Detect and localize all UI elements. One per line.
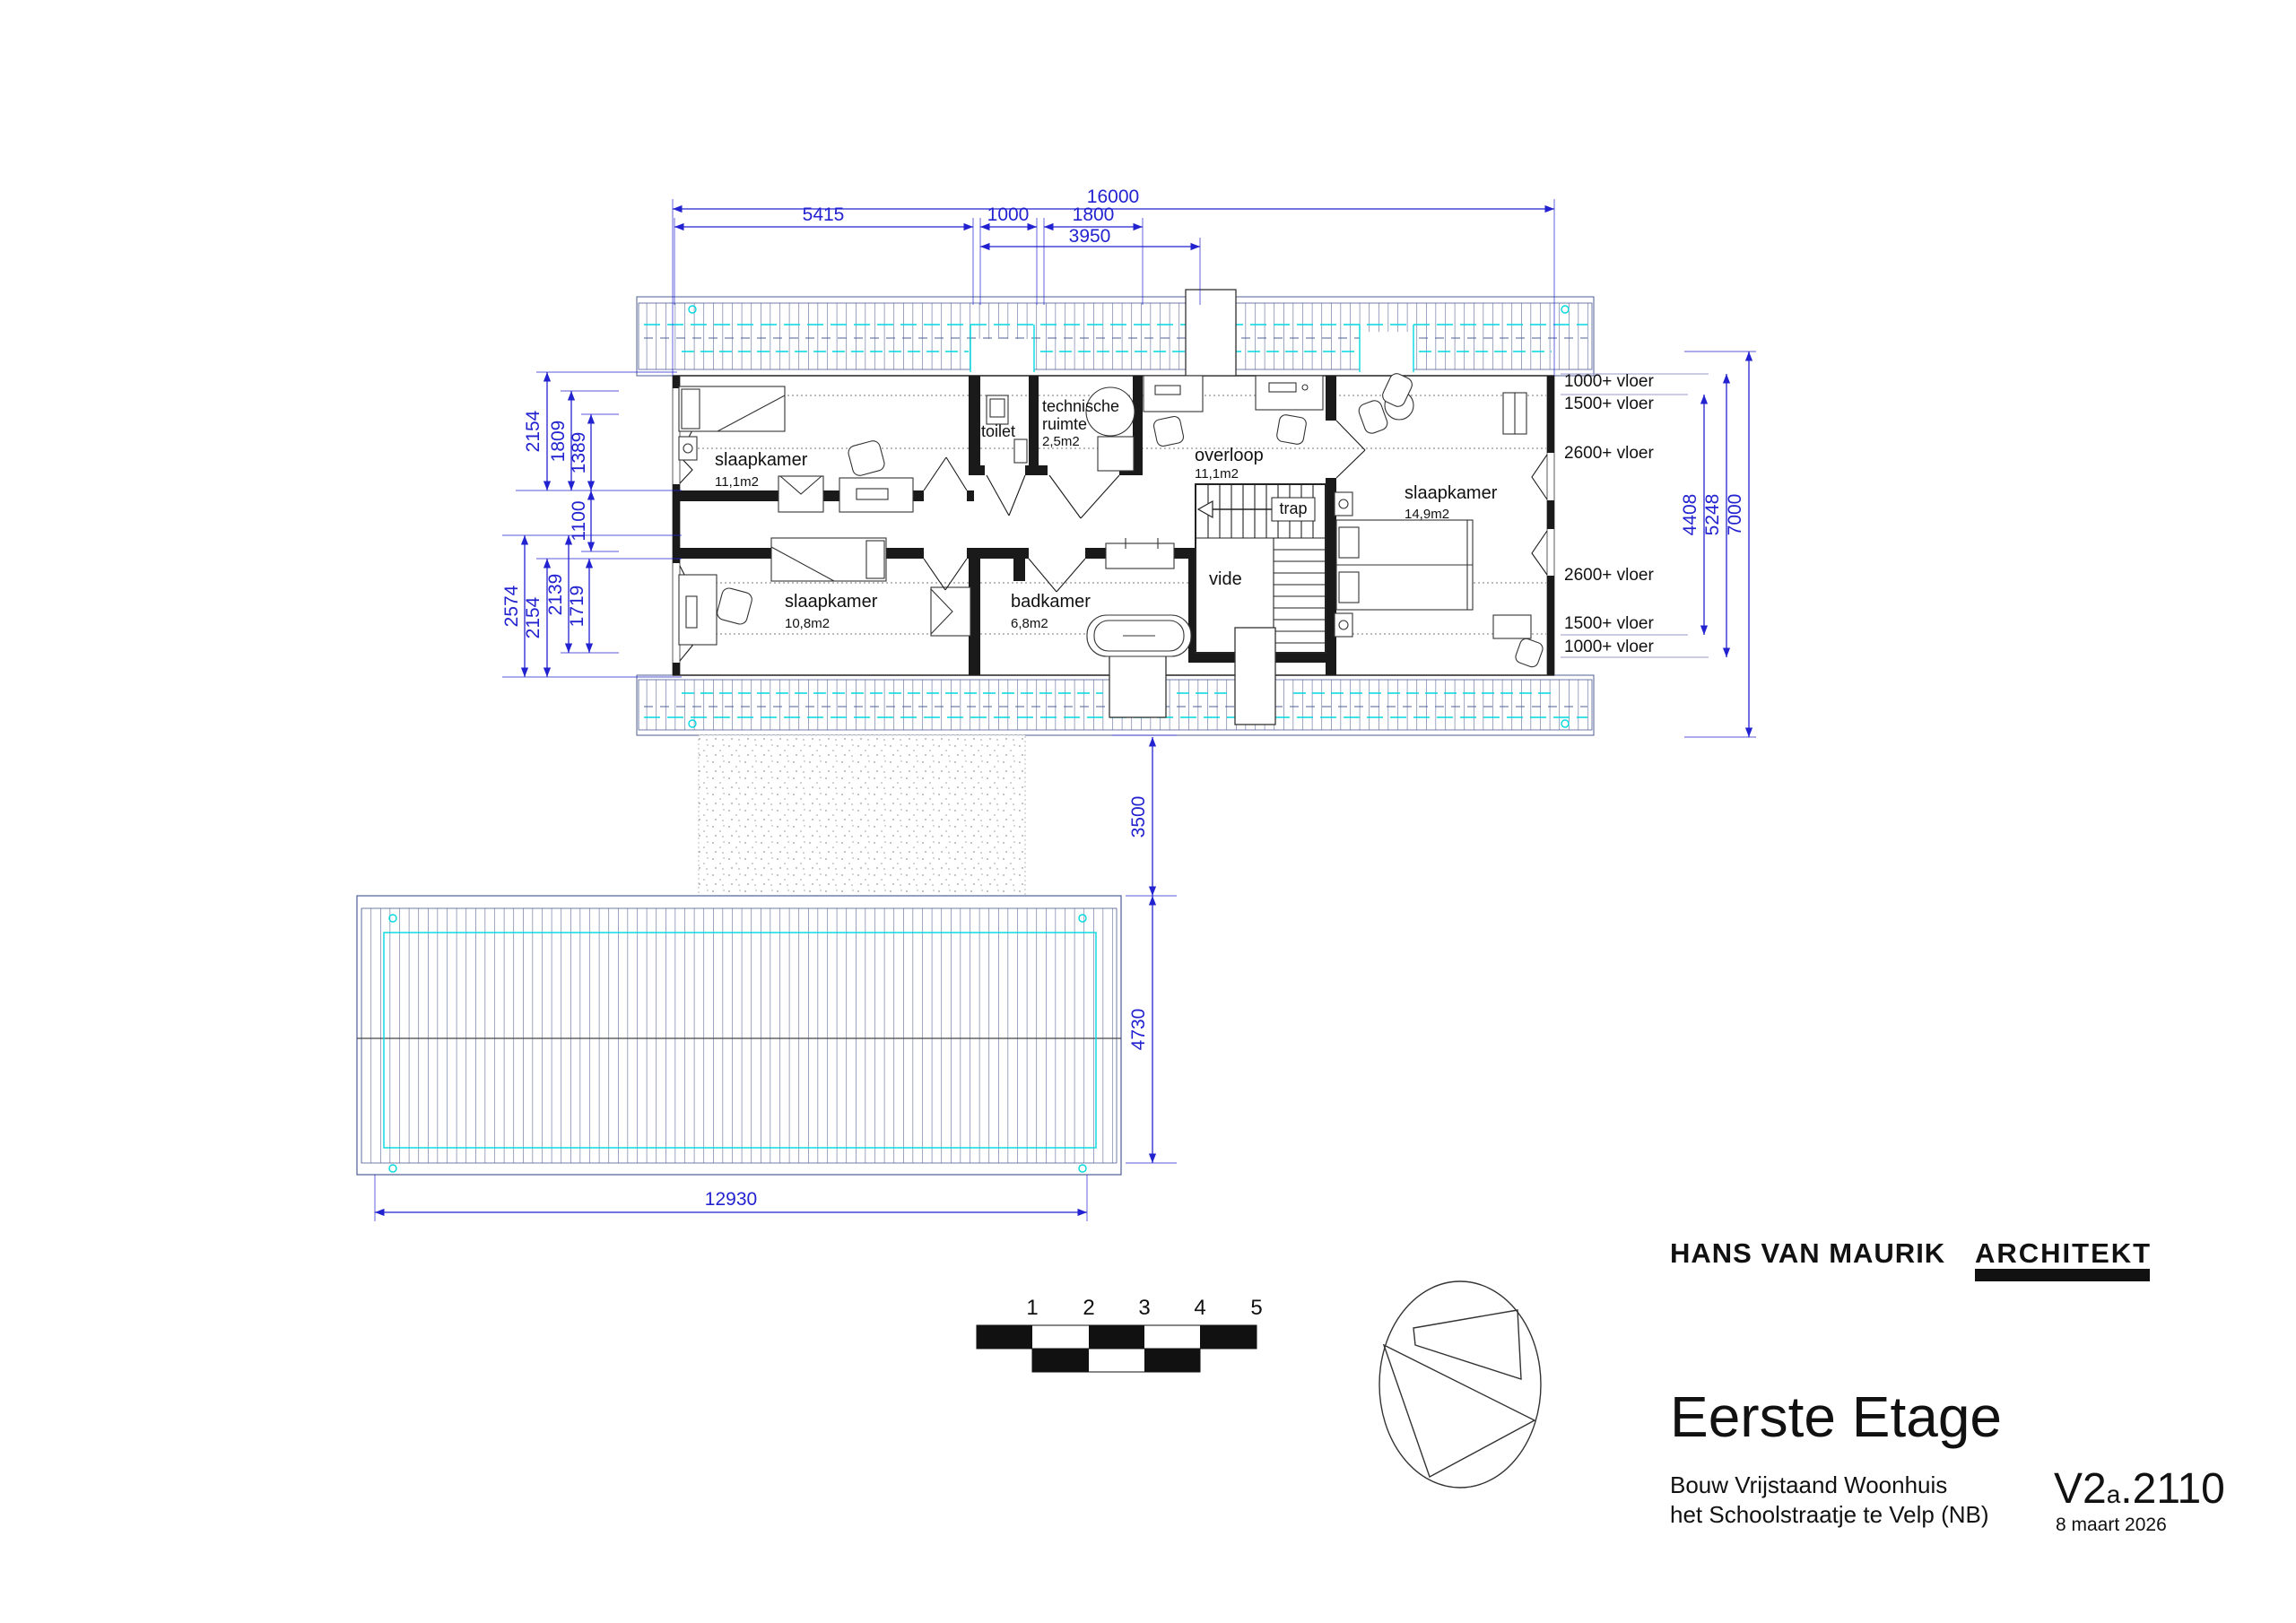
firm-underline-bar [1975, 1269, 2150, 1281]
roof-band-north [637, 297, 1594, 376]
room-label-badkamer: badkamer [1011, 592, 1091, 612]
room-label-slaapkamer-sw: slaapkamer [785, 592, 878, 612]
scale-tick-5: 5 [1250, 1296, 1262, 1320]
room-area-slaapkamer-e: 14,9m2 [1405, 507, 1449, 522]
room-area-slaapkamer-sw: 10,8m2 [785, 616, 830, 631]
level-label-b1: 2600+ vloer [1564, 566, 1654, 585]
dim-roof-width: 12930 [705, 1189, 757, 1210]
room-label-toilet: toilet [981, 422, 1015, 440]
scale-tick-2: 2 [1083, 1296, 1094, 1320]
dim-left-8: 1719 [567, 586, 587, 628]
room-label-trap: trap [1279, 499, 1307, 517]
level-label-t1: 1000+ vloer [1564, 372, 1654, 391]
dim-roof-depth: 4730 [1128, 1009, 1149, 1051]
dim-top-1: 5415 [803, 204, 845, 225]
scale-bar: 1 2 3 4 5 [977, 1296, 1263, 1372]
level-label-b3: 1000+ vloer [1564, 638, 1654, 656]
drawing-number: V2a.2110 [2054, 1465, 2225, 1513]
dim-right-2: 5248 [1702, 494, 1723, 536]
room-area-tech: 2,5m2 [1042, 434, 1080, 449]
room-area-slaapkamer-nw: 11,1m2 [715, 474, 759, 490]
scale-tick-1: 1 [1026, 1296, 1038, 1320]
project-line-1: Bouw Vrijstaand Woonhuis [1670, 1471, 1947, 1498]
room-label-tech-1: technische [1042, 397, 1119, 415]
firm-role: ARCHITEKT [1975, 1237, 2152, 1269]
room-area-badkamer: 6,8m2 [1011, 616, 1048, 631]
dim-left-7: 2139 [545, 574, 566, 616]
dim-south-gap: 3500 [1128, 796, 1149, 838]
room-area-overloop: 11,1m2 [1195, 466, 1239, 482]
room-label-slaapkamer-e: slaapkamer [1405, 483, 1498, 503]
title-block: HANS VAN MAURIK ARCHITEKT Eerste Etage B… [1670, 1237, 2225, 1535]
room-label-overloop: overloop [1195, 446, 1264, 465]
dim-top-4: 3950 [1069, 226, 1111, 247]
lower-roof [357, 896, 1121, 1175]
drawing-sheet: slaapkamer 11,1m2 slaapkamer 10,8m2 toil… [0, 0, 2296, 1623]
scale-tick-4: 4 [1194, 1296, 1205, 1320]
room-label-slaapkamer-nw: slaapkamer [715, 450, 808, 470]
project-line-2: het Schoolstraatje te Velp (NB) [1670, 1501, 1989, 1528]
dim-left-1: 2154 [523, 410, 544, 452]
firm-name: HANS VAN MAURIK [1670, 1237, 1945, 1269]
scale-tick-3: 3 [1138, 1296, 1150, 1320]
dimensions-left: 2154 1809 1389 1100 2574 2154 2139 1719 [501, 372, 682, 677]
floor-plan-drawing: slaapkamer 11,1m2 slaapkamer 10,8m2 toil… [0, 0, 2296, 1623]
level-label-t3: 2600+ vloer [1564, 444, 1654, 463]
dim-left-2: 1809 [548, 421, 569, 463]
dormer-north [1186, 290, 1236, 376]
dormer-south-vide [1235, 628, 1275, 725]
dim-left-4: 1100 [569, 500, 589, 541]
site-connector [699, 735, 1025, 896]
room-label-tech-2: ruimte [1042, 415, 1087, 433]
dim-left-3: 1389 [569, 432, 589, 474]
dim-left-5: 2574 [501, 585, 522, 627]
dim-top-2: 1000 [987, 204, 1030, 225]
dim-right-1: 4408 [1680, 494, 1700, 536]
drawing-date: 8 maart 2026 [2056, 1515, 2167, 1535]
dim-left-6: 2154 [523, 596, 544, 638]
company-logo [1379, 1281, 1541, 1488]
level-label-b2: 1500+ vloer [1564, 614, 1654, 633]
dim-top-3: 1800 [1073, 204, 1115, 225]
dim-right-3: 7000 [1725, 494, 1745, 536]
level-label-t2: 1500+ vloer [1564, 395, 1654, 413]
sheet-title: Eerste Etage [1670, 1384, 2002, 1449]
room-label-vide: vide [1209, 569, 1242, 589]
